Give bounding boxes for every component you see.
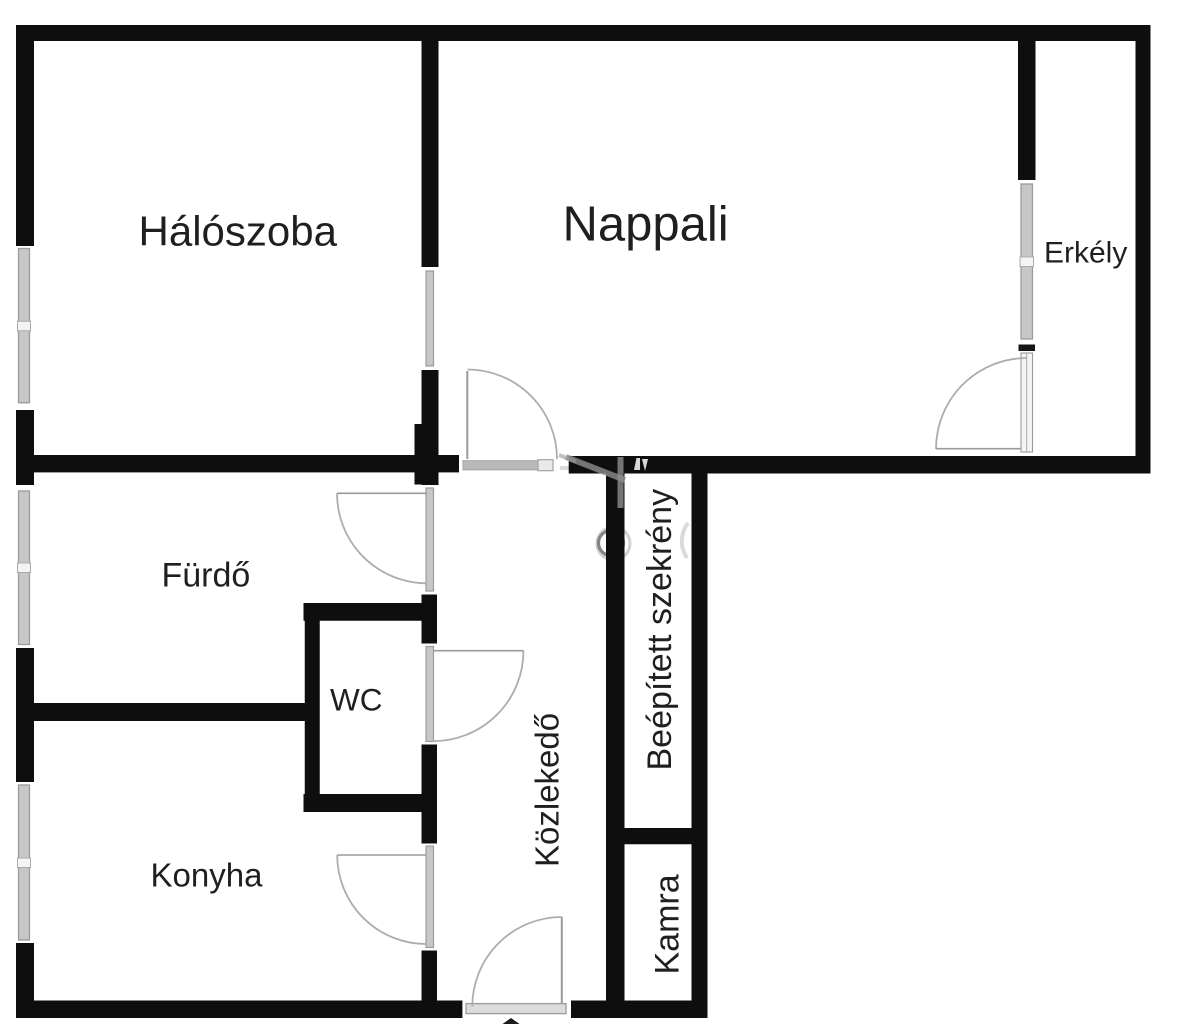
svg-text:Beépített szekrény: Beépített szekrény xyxy=(641,489,679,771)
svg-text:Fürdő: Fürdő xyxy=(162,556,251,594)
svg-text:Közlekedő: Közlekedő xyxy=(529,713,566,867)
svg-text:Hálószoba: Hálószoba xyxy=(139,208,338,255)
svg-text:Erkély: Erkély xyxy=(1044,236,1127,269)
svg-text:Konyha: Konyha xyxy=(151,857,264,894)
svg-text:Kamra: Kamra xyxy=(649,874,687,974)
svg-text:Nappali: Nappali xyxy=(563,198,729,252)
svg-text:WC: WC xyxy=(330,681,382,717)
